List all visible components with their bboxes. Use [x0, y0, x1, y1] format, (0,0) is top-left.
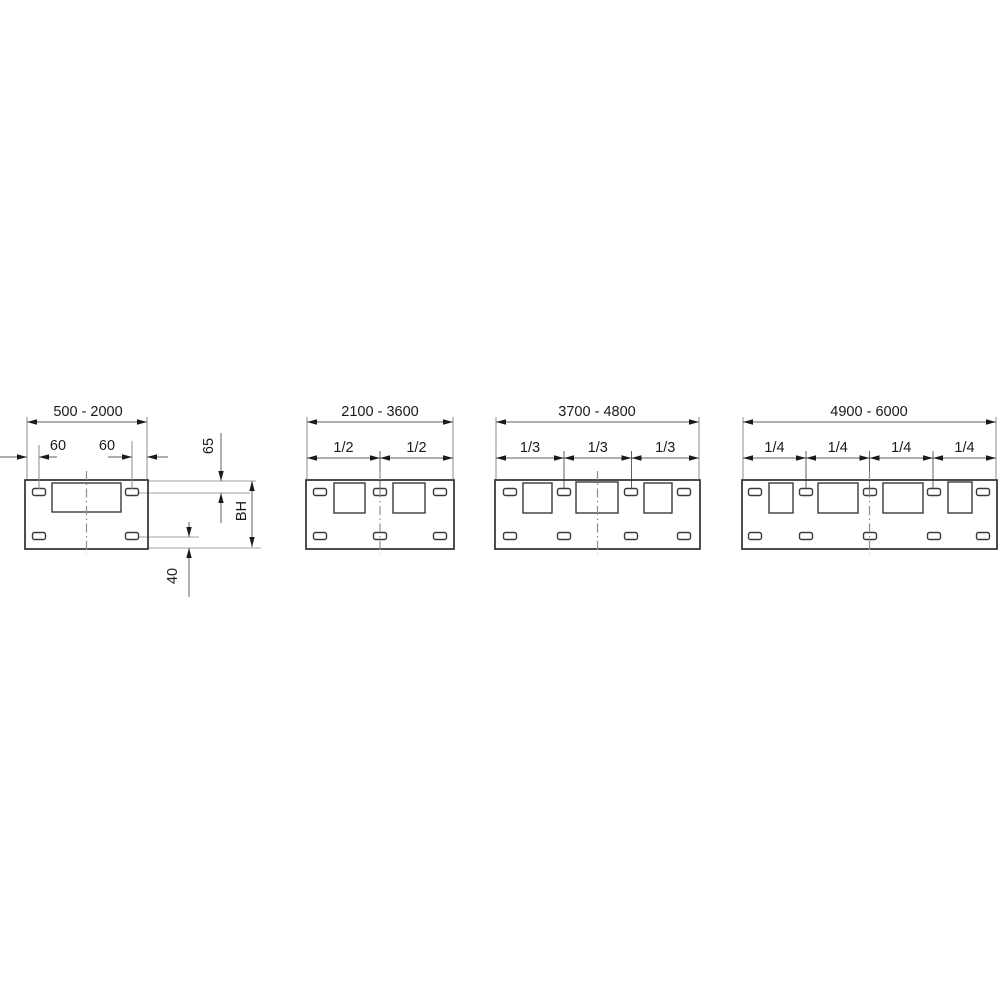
mount-slot-top	[126, 489, 139, 496]
dim-65-label: 65	[201, 438, 217, 454]
dim-bh-label: BH	[234, 501, 250, 521]
dim-arrow	[986, 455, 996, 460]
fraction-dimension-label: 1/4	[891, 440, 911, 456]
dim-arrow	[632, 455, 642, 460]
dim-arrow	[923, 455, 933, 460]
dim-arrow	[370, 455, 380, 460]
window-cutout	[948, 482, 972, 513]
mount-slot-top	[314, 489, 327, 496]
dim-arrow	[796, 455, 806, 460]
mount-slot-top	[749, 489, 762, 496]
dim-arrow	[249, 537, 254, 547]
mount-slot-top	[678, 489, 691, 496]
dim-40-label: 40	[165, 568, 181, 584]
dim-arrow	[307, 455, 317, 460]
window-cutout	[883, 483, 923, 513]
window-cutout	[818, 483, 858, 513]
mount-slot-bottom	[977, 533, 990, 540]
mount-slot-top	[625, 489, 638, 496]
mount-slot-bottom	[558, 533, 571, 540]
dim-arrow	[622, 455, 632, 460]
fraction-dimension-label: 1/2	[333, 440, 353, 456]
mount-slot-bottom	[33, 533, 46, 540]
dim-arrow	[186, 527, 191, 537]
dim-arrow	[17, 454, 27, 459]
mount-slot-top	[928, 489, 941, 496]
dim-arrow	[689, 455, 699, 460]
range-dimension-label: 3700 - 4800	[558, 404, 635, 420]
window-cutout	[393, 483, 425, 513]
dim-arrow	[307, 419, 317, 424]
fraction-dimension-label: 1/4	[764, 440, 784, 456]
fraction-dimension-label: 1/3	[655, 440, 675, 456]
dim-arrow	[496, 455, 506, 460]
fraction-dimension-label: 1/2	[406, 440, 426, 456]
fraction-dimension-label: 1/3	[520, 440, 540, 456]
dim-arrow	[186, 548, 191, 558]
mount-slot-bottom	[749, 533, 762, 540]
dim-arrow	[689, 419, 699, 424]
range-dimension-label: 500 - 2000	[53, 404, 122, 420]
mount-slot-bottom	[800, 533, 813, 540]
dim-arrow	[443, 455, 453, 460]
dim-arrow	[806, 455, 816, 460]
dim-arrow	[496, 419, 506, 424]
mount-slot-bottom	[504, 533, 517, 540]
range-dimension-label: 4900 - 6000	[830, 404, 907, 420]
dim-arrow	[870, 455, 880, 460]
dim-arrow	[743, 455, 753, 460]
mount-slot-bottom	[625, 533, 638, 540]
mount-slot-bottom	[928, 533, 941, 540]
window-cutout	[769, 483, 793, 513]
dim-60-right-label: 60	[99, 438, 115, 454]
dim-arrow	[743, 419, 753, 424]
dim-arrow	[380, 455, 390, 460]
mount-slot-bottom	[314, 533, 327, 540]
fraction-dimension-label: 1/4	[954, 440, 974, 456]
dim-arrow	[554, 455, 564, 460]
mount-slot-top	[800, 489, 813, 496]
dim-arrow	[249, 481, 254, 491]
mount-slot-top	[434, 489, 447, 496]
drawing-canvas: 500 - 20002100 - 36001/21/23700 - 48001/…	[0, 0, 1000, 1000]
dim-arrow	[137, 419, 147, 424]
dim-arrow	[564, 455, 574, 460]
fraction-dimension-label: 1/3	[588, 440, 608, 456]
mount-slot-bottom	[678, 533, 691, 540]
dim-arrow	[122, 454, 132, 459]
panel-dimension-drawing: 500 - 20002100 - 36001/21/23700 - 48001/…	[0, 0, 1000, 1000]
dim-arrow	[933, 455, 943, 460]
dim-arrow	[986, 419, 996, 424]
mount-slot-bottom	[126, 533, 139, 540]
mount-slot-top	[558, 489, 571, 496]
mount-slot-bottom	[434, 533, 447, 540]
dim-60-left-label: 60	[50, 438, 66, 454]
dim-arrow	[27, 419, 37, 424]
window-cutout	[644, 483, 672, 513]
dim-arrow	[218, 471, 223, 481]
dim-arrow	[218, 493, 223, 503]
window-cutout	[334, 483, 365, 513]
dim-arrow	[39, 454, 49, 459]
dim-arrow	[147, 454, 157, 459]
range-dimension-label: 2100 - 3600	[341, 404, 418, 420]
window-cutout	[523, 483, 552, 513]
dim-arrow	[860, 455, 870, 460]
mount-slot-top	[977, 489, 990, 496]
fraction-dimension-label: 1/4	[828, 440, 848, 456]
mount-slot-top	[33, 489, 46, 496]
mount-slot-top	[504, 489, 517, 496]
dim-arrow	[443, 419, 453, 424]
